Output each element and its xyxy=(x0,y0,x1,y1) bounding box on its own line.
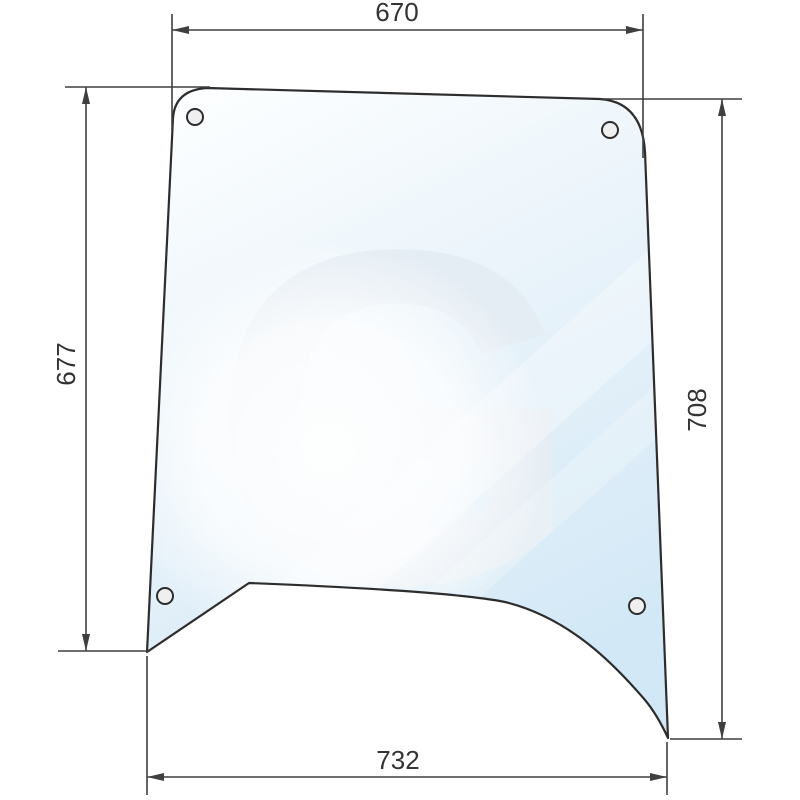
dimension-label-bottom: 732 xyxy=(376,745,419,775)
arrowhead-down xyxy=(82,634,90,651)
dimension-label-left: 677 xyxy=(51,342,81,385)
mounting-hole-top-right xyxy=(602,122,618,138)
glass-highlight xyxy=(110,240,550,660)
mounting-hole-top-left xyxy=(187,109,203,125)
mounting-hole-bottom-left xyxy=(157,588,173,604)
arrowhead-left xyxy=(147,773,164,781)
arrowhead-right xyxy=(650,773,667,781)
arrowhead-left xyxy=(172,26,189,34)
arrowhead-up xyxy=(82,87,90,104)
mounting-hole-bottom-right xyxy=(629,598,645,614)
arrowhead-down xyxy=(718,722,726,739)
glass-technical-drawing: G 670 677 708 xyxy=(0,0,800,800)
arrowhead-right xyxy=(626,26,643,34)
dimension-label-top: 670 xyxy=(375,0,418,27)
arrowhead-up xyxy=(718,99,726,116)
technical-drawing-page: G 670 677 708 xyxy=(0,0,800,800)
dimension-label-right: 708 xyxy=(682,388,712,431)
